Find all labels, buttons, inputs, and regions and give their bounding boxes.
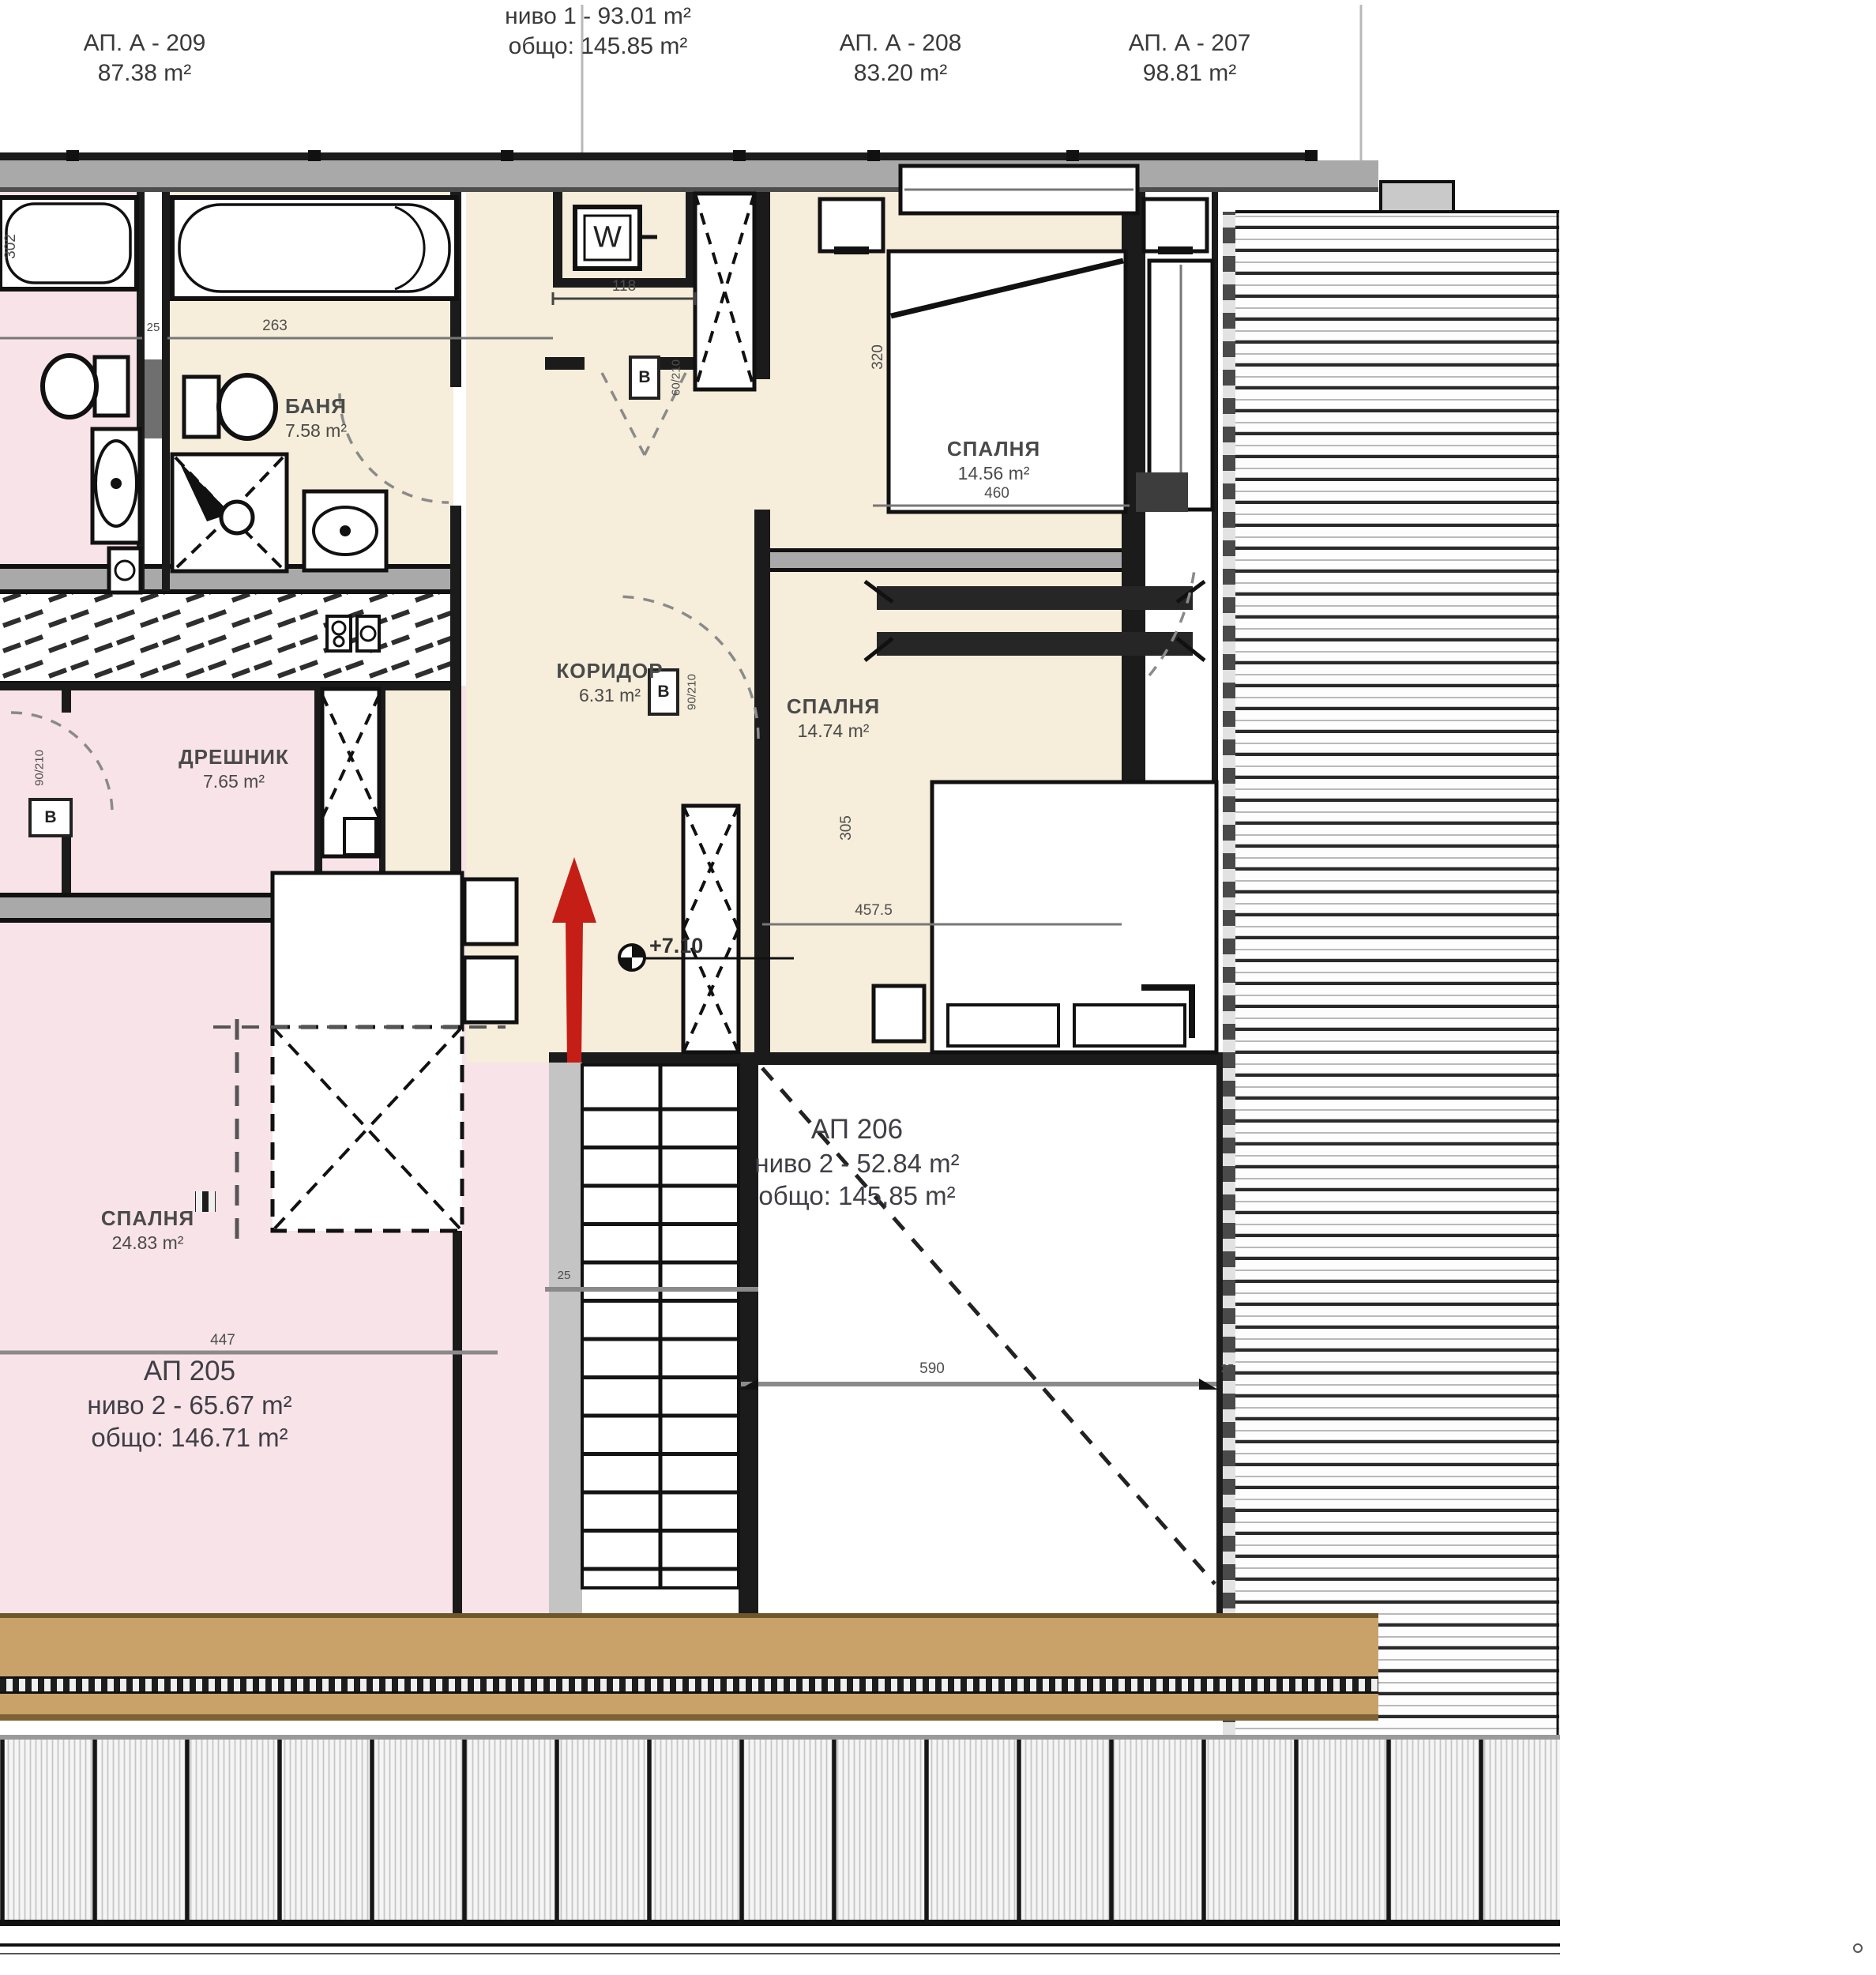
dim-118: 118	[612, 278, 636, 295]
toilet-tank-icon	[95, 357, 128, 416]
dim-25-c: 25	[1221, 1362, 1235, 1375]
apartment-label-205: АП 205 ниво 2 - 65.67 m² общо: 146.71 m²	[87, 1354, 291, 1454]
bathtub-icon	[0, 197, 137, 289]
nightstand	[1144, 199, 1207, 251]
door-tag-b2: B	[657, 683, 669, 702]
nightstand	[464, 957, 517, 1022]
room-label-banya: БАНЯ 7.58 m²	[285, 393, 347, 442]
nightstand	[464, 879, 517, 944]
dim-457-5: 457.5	[855, 902, 893, 920]
door-tag-b3: B	[44, 808, 56, 827]
stairwell	[545, 1063, 758, 1613]
nightstand	[820, 199, 883, 251]
roof-slope-hatch-band	[0, 564, 454, 686]
dim-302: 302	[2, 234, 20, 259]
bed-under-slope	[273, 1027, 462, 1231]
level1-summary-label: ниво 1 - 93.01 m²общо: 145.85 m²	[505, 2, 691, 61]
room-label-bedroom-left: СПАЛНЯ 24.83 m²	[101, 1206, 194, 1254]
room-label-dreshnik: ДРЕШНИК 7.65 m²	[179, 744, 289, 792]
dim-590: 590	[919, 1360, 945, 1378]
room-label-koridor: КОРИДОР 6.31 m²	[556, 658, 663, 706]
nightstand	[874, 986, 924, 1041]
column-block	[195, 1191, 216, 1212]
toilet-icon	[43, 355, 96, 417]
dim-25-b: 25	[558, 1269, 571, 1282]
room-label-bedroom-mid: СПАЛНЯ 14.74 m²	[787, 694, 880, 742]
apartment-label-208: АП. А - 20883.20 m²	[840, 28, 962, 88]
door-tag-b1: B	[638, 368, 650, 387]
floor-plan-drawing	[0, 0, 1876, 1975]
floor-plan-canvas: АП. А - 20987.38 m² ниво 1 - 93.01 m²общ…	[0, 0, 1876, 1975]
wardrobe-dreshnik	[322, 616, 379, 856]
dim-door-60-210: 60/210	[670, 359, 683, 396]
dim-447: 447	[210, 1332, 235, 1349]
dim-door-90-210-a: 90/210	[686, 674, 699, 710]
lower-deck-band	[0, 1735, 1862, 1954]
dim-460: 460	[984, 485, 1009, 502]
dim-320: 320	[870, 344, 887, 370]
apartment-label-206: АП 206 ниво 2 - 52.84 m² общо: 145,85 m²	[754, 1112, 959, 1212]
apartment-label-209: АП. А - 20987.38 m²	[84, 28, 206, 88]
bed	[273, 873, 462, 1029]
room-label-bedroom-top: СПАЛНЯ 14.56 m²	[947, 436, 1040, 484]
balcony-deck-right	[1223, 212, 1559, 1736]
wardrobe-top	[695, 194, 754, 389]
bathtub-icon	[172, 197, 457, 299]
washer-tag: W	[593, 221, 622, 255]
dim-305: 305	[838, 815, 855, 841]
toilet-icon	[219, 375, 276, 438]
toilet-tank-icon	[184, 377, 219, 437]
dim-263: 263	[262, 318, 288, 335]
wardrobe-corridor	[683, 806, 739, 1052]
apartment-label-207: АП. А - 20798.81 m²	[1129, 28, 1251, 88]
level-value: +7.10	[649, 934, 703, 958]
dim-door-90-210-b: 90/210	[33, 750, 47, 786]
roof-eave-band	[0, 1613, 1378, 1721]
dim-25-a: 25	[147, 321, 160, 334]
